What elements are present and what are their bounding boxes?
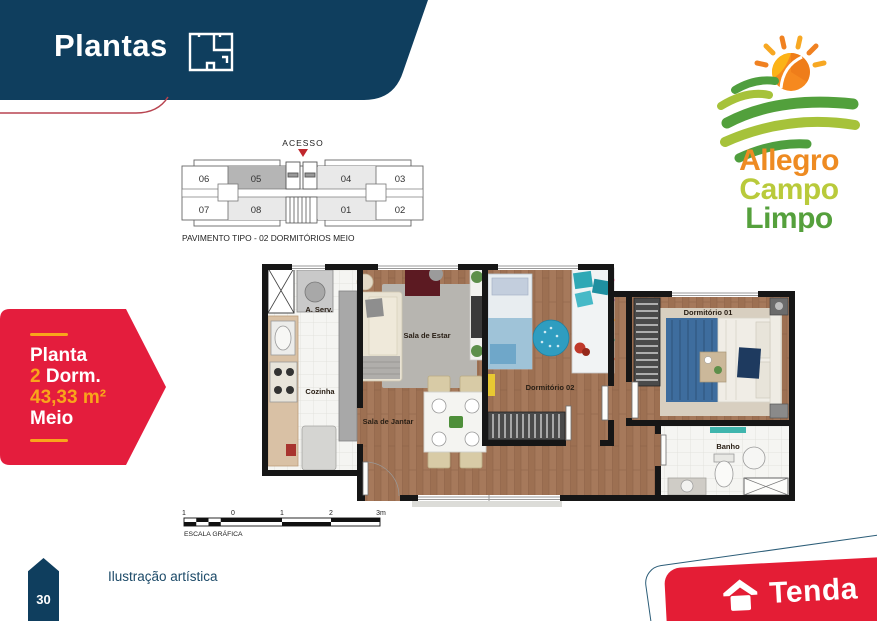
- unit-number: 04: [341, 174, 352, 185]
- project-logo: Allegro Campo Limpo: [703, 20, 875, 232]
- banner-position: Meio: [30, 408, 106, 429]
- tray-icon: [700, 352, 726, 382]
- brochure-page: Plantas: [0, 0, 877, 621]
- svg-text:2: 2: [329, 510, 333, 517]
- room-label-dorm1: Dormitório 01: [684, 308, 733, 317]
- floorplan-icon: [186, 30, 236, 74]
- sink-icon: [275, 326, 291, 350]
- key-plan-caption: PAVIMENTO TIPO - 02 DORMITÓRIOS MEIO: [182, 233, 355, 243]
- unit-number: 02: [395, 205, 406, 216]
- svg-text:1: 1: [280, 510, 284, 517]
- access-arrow-icon: [298, 149, 308, 157]
- balcony-slab: [412, 501, 562, 507]
- floor-plan: A. Serv. Cozinha Sala de Estar Sala de J…: [262, 258, 795, 510]
- banner-area: 43,33 m²: [30, 387, 106, 408]
- key-plan: ACESSO: [180, 136, 426, 248]
- page-title: Plantas: [54, 28, 168, 64]
- banner-rule-bottom: [30, 439, 68, 442]
- round-rug-icon: [533, 320, 569, 356]
- svg-text:3m: 3m: [376, 510, 386, 517]
- access-label: ACESSO: [282, 138, 323, 148]
- toilet-icon: [715, 461, 733, 487]
- unit-number: 05: [251, 174, 262, 185]
- svg-text:0: 0: [231, 510, 235, 517]
- scale-caption: ESCALA GRÁFICA: [184, 529, 243, 538]
- room-label-aserv: A. Serv.: [305, 305, 332, 314]
- room-label-jantar: Sala de Jantar: [363, 417, 414, 426]
- plan-banner: Planta 2 Dorm. 43,33 m² Meio: [0, 309, 168, 465]
- stove-icon: [270, 362, 297, 402]
- towel-icon: [710, 427, 746, 433]
- unit-number: 07: [199, 205, 210, 216]
- banner-title: Planta: [30, 345, 106, 366]
- stairs-icon: [286, 197, 317, 223]
- artistic-note: Ilustração artística: [108, 569, 218, 584]
- header-accent-curve: [0, 90, 180, 122]
- logo-line3: Limpo: [745, 202, 833, 232]
- room-label-cozinha: Cozinha: [305, 387, 335, 396]
- tenda-house-icon: [721, 578, 761, 614]
- room-label-banho: Banho: [716, 442, 740, 451]
- unit-number: 08: [251, 205, 262, 216]
- scale-bar: 1 0 1 2 3m ESCALA GRÁFICA: [180, 506, 390, 542]
- fridge-icon: [302, 426, 336, 470]
- nightstand-icon: [770, 404, 788, 418]
- svg-text:1: 1: [182, 510, 186, 517]
- washbasin-icon: [743, 447, 765, 469]
- counter-icon: [339, 291, 357, 441]
- page-number-tab: 30: [28, 558, 59, 621]
- room-label-dorm2: Dormitório 02: [526, 383, 575, 392]
- unit-number: 01: [341, 205, 352, 216]
- unit-number: 03: [395, 174, 406, 185]
- tenda-wordmark: Tenda: [768, 572, 858, 611]
- unit-number: 06: [199, 174, 210, 185]
- banner-dorm: 2 Dorm.: [30, 366, 106, 387]
- room-label-estar: Sala de Estar: [403, 331, 450, 340]
- pillow-icon: [737, 347, 761, 378]
- banner-rule-top: [30, 333, 68, 336]
